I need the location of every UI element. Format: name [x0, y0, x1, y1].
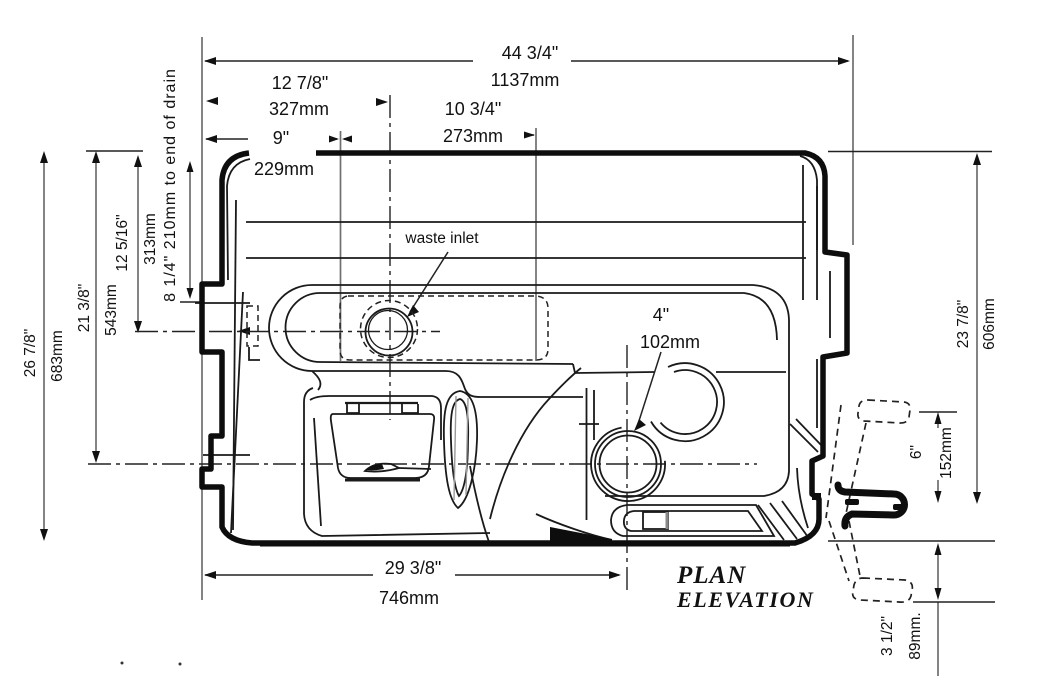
svg-text:102mm: 102mm: [640, 332, 700, 352]
svg-text:26 7/8": 26 7/8": [22, 329, 39, 378]
svg-text:29 3/8": 29 3/8": [385, 558, 441, 578]
svg-text:21 3/8": 21 3/8": [76, 284, 93, 333]
svg-text:313mm: 313mm: [142, 213, 159, 265]
svg-text:9": 9": [273, 128, 289, 148]
svg-text:44 3/4": 44 3/4": [502, 43, 558, 63]
svg-text:543mm: 543mm: [103, 284, 120, 336]
svg-text:12 7/8": 12 7/8": [272, 73, 328, 93]
svg-text:327mm: 327mm: [269, 99, 329, 119]
svg-text:746mm: 746mm: [379, 588, 439, 608]
svg-text:4": 4": [653, 305, 669, 325]
svg-text:ELEVATION: ELEVATION: [676, 587, 814, 612]
svg-text:23 7/8": 23 7/8": [955, 300, 972, 349]
svg-text:3 1/2": 3 1/2": [879, 616, 896, 656]
svg-text:229mm: 229mm: [254, 159, 314, 179]
svg-text:89mm.: 89mm.: [907, 612, 924, 659]
svg-text:1137mm: 1137mm: [491, 70, 560, 90]
svg-text:PLAN: PLAN: [676, 562, 746, 589]
svg-text:152mm: 152mm: [938, 427, 955, 479]
svg-text:683mm: 683mm: [49, 330, 66, 382]
svg-text:10 3/4": 10 3/4": [445, 99, 501, 119]
svg-text:8 1/4" 210mm to end of drain: 8 1/4" 210mm to end of drain: [162, 68, 179, 302]
svg-text:12 5/16": 12 5/16": [114, 214, 131, 271]
svg-text:6": 6": [908, 445, 925, 459]
svg-text:606mm: 606mm: [981, 298, 998, 350]
svg-text:waste inlet: waste inlet: [404, 230, 479, 247]
svg-text:273mm: 273mm: [443, 126, 503, 146]
